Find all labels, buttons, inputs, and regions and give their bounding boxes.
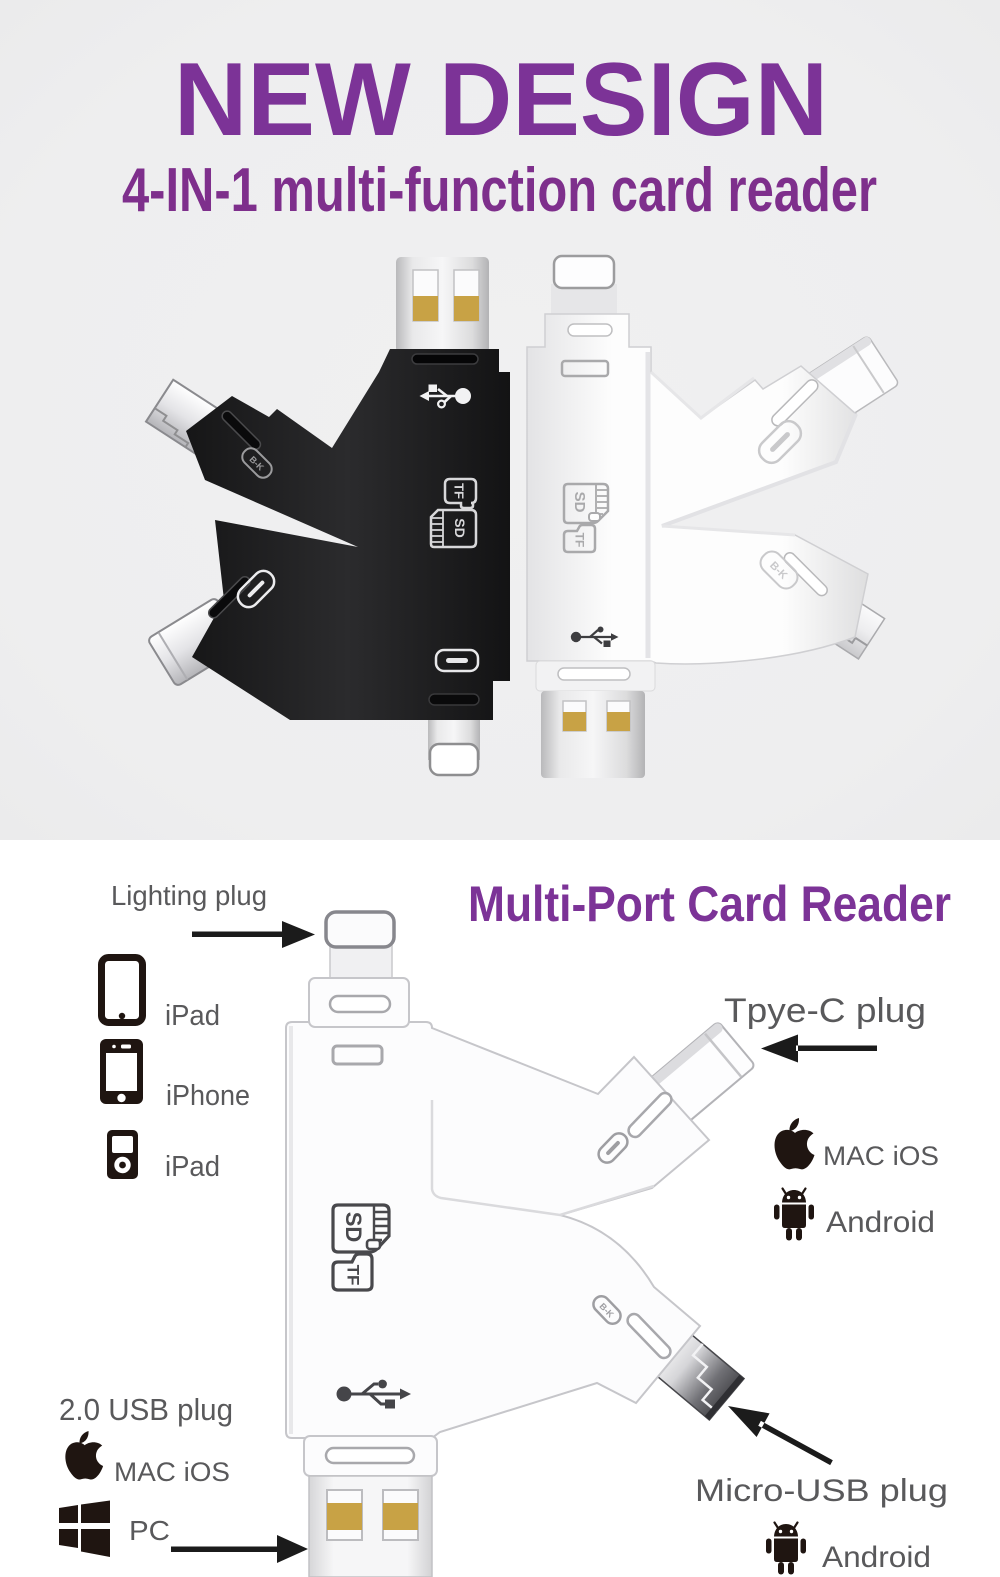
svg-text:Multi-Port Card Reader: Multi-Port Card Reader: [468, 876, 951, 932]
svg-text:Tpye-C plug: Tpye-C plug: [724, 992, 926, 1030]
svg-text:Android: Android: [822, 1541, 931, 1574]
svg-text:iPhone: iPhone: [166, 1080, 250, 1112]
svg-text:iPad: iPad: [165, 1151, 220, 1183]
svg-text:SD: SD: [452, 518, 468, 537]
svg-text:Android: Android: [826, 1206, 935, 1239]
svg-text:SD: SD: [571, 492, 588, 513]
svg-text:TF: TF: [344, 1265, 363, 1286]
svg-text:iPad: iPad: [165, 1000, 220, 1032]
svg-text:NEW DESIGN: NEW DESIGN: [174, 42, 828, 158]
svg-text:Lighting plug: Lighting plug: [111, 880, 267, 911]
svg-text:TF: TF: [452, 483, 467, 499]
svg-text:MAC iOS: MAC iOS: [114, 1457, 230, 1487]
svg-text:PC: PC: [129, 1515, 170, 1546]
svg-text:MAC iOS: MAC iOS: [823, 1141, 939, 1171]
svg-text:2.0 USB plug: 2.0 USB plug: [59, 1393, 233, 1427]
svg-text:4-IN-1 multi-function card rea: 4-IN-1 multi-function card reader: [122, 156, 877, 225]
svg-text:SD: SD: [341, 1212, 366, 1243]
svg-text:TF: TF: [573, 533, 587, 548]
svg-text:Micro-USB plug: Micro-USB plug: [695, 1472, 948, 1508]
